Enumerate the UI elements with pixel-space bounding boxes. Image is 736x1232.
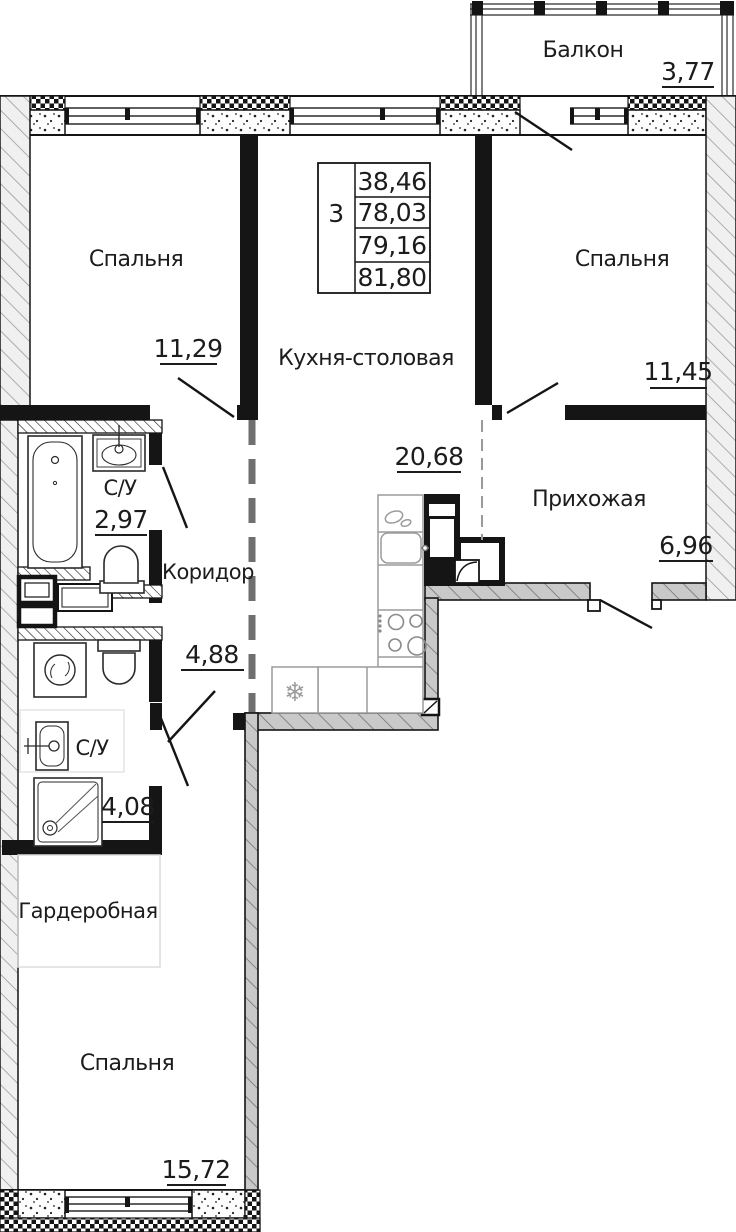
- vent-shaft: [424, 494, 502, 586]
- utility-niche: [19, 577, 112, 626]
- hallway-area: 6,96: [659, 531, 713, 560]
- wall-bedroom2-hall-left: [492, 405, 502, 420]
- bedroom-top-right-label: Спальня: [575, 247, 669, 272]
- hallway-label: Прихожая: [532, 487, 646, 512]
- wall-bedroom1-bottom-right: [237, 405, 258, 420]
- kitchen-area: 20,68: [394, 442, 463, 471]
- wall-bedroom1-kitchen: [240, 135, 258, 405]
- kitchen-counter: [318, 495, 423, 713]
- left-wall-upper: [0, 96, 30, 420]
- area-table: 3 38,46 78,03 79,16 81,80: [318, 163, 430, 293]
- sink-icon: [24, 722, 68, 770]
- balcony-label: Балкон: [543, 38, 624, 63]
- bedroom-bottom-label: Спальня: [80, 1051, 174, 1076]
- corridor-area: 4,88: [185, 640, 239, 669]
- right-wall: [706, 96, 736, 600]
- windows-top: [65, 108, 628, 124]
- wall-kitchen-right-lower: [425, 598, 438, 713]
- door-stop-right: [652, 600, 661, 609]
- jamb-corridor-right: [233, 713, 245, 730]
- railing-posts: [472, 1, 734, 15]
- area-reduced: 79,16: [357, 231, 426, 260]
- door-bedroom1: [178, 378, 234, 417]
- floor-plan: ❄: [0, 0, 736, 1232]
- floor-plan-drawing: ❄: [0, 0, 736, 1232]
- door-bathroom1: [163, 467, 187, 528]
- area-total: 81,80: [357, 263, 426, 292]
- toilet-icon: [100, 546, 144, 593]
- kitchen-fixtures: ❄: [272, 495, 429, 713]
- left-wall-lower: [0, 420, 18, 1232]
- bedroom-bottom-area: 15,72: [161, 1155, 230, 1184]
- snowflake-icon: ❄: [284, 678, 306, 708]
- bedroom-top-left-area: 11,29: [153, 334, 222, 363]
- window-bedroom-top-right: [570, 108, 628, 124]
- washing-machine-icon: [34, 643, 86, 697]
- toilet-icon: [98, 640, 140, 684]
- door-bedroom3: [168, 691, 215, 742]
- wall-bedroom3-right: [245, 713, 258, 1190]
- kitchen-label: Кухня-столовая: [278, 346, 454, 371]
- area-living: 38,46: [357, 167, 426, 196]
- bathroom-small-area: 2,97: [94, 505, 148, 534]
- rooms-count: 3: [328, 199, 343, 228]
- bedroom-top-right-area: 11,45: [643, 357, 712, 386]
- balcony-area: 3,77: [661, 57, 715, 86]
- area-main: 78,03: [357, 198, 426, 227]
- bedroom-top-left-label: Спальня: [89, 247, 183, 272]
- wall-bedroom2-hall-right: [565, 405, 706, 420]
- wall-kitchen-bottom: [245, 713, 438, 730]
- door-bedroom2: [507, 383, 558, 413]
- shower-icon: [34, 778, 102, 846]
- bathroom-big-area: 4,08: [101, 792, 155, 821]
- fridge-icon: ❄: [272, 667, 318, 713]
- door-stop-left: [588, 600, 600, 611]
- wall-entry-right: [652, 583, 706, 600]
- bottom-exterior-wall: [0, 1190, 260, 1232]
- door-balcony: [515, 112, 572, 150]
- bathroom-big-label: С/У: [75, 736, 109, 760]
- window-kitchen: [290, 108, 440, 124]
- bathroom-small-label: С/У: [103, 476, 137, 500]
- window-bedroom-bottom: [65, 1197, 192, 1213]
- wall-bedroom1-bottom-left: [0, 405, 150, 420]
- fan-icon: [455, 560, 479, 583]
- window-bedroom-top-left: [65, 108, 200, 124]
- corridor-label: Коридор: [162, 560, 254, 584]
- wall-kitchen-bedroom2: [475, 135, 492, 405]
- wardrobe-label: Гардеробная: [18, 899, 157, 923]
- bathtub-icon: [28, 436, 82, 568]
- door-entrance: [600, 600, 652, 628]
